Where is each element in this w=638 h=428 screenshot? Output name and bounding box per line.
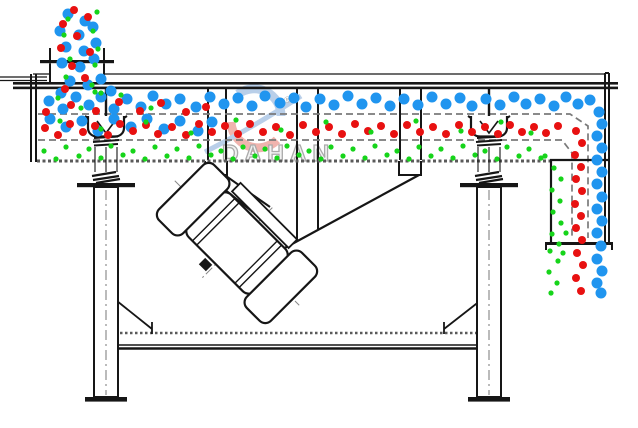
green-particle [549,231,554,236]
blue-particle [44,96,55,107]
green-particle [482,148,487,153]
red-particle [61,85,69,93]
red-particle [92,107,100,115]
red-particle [182,108,190,116]
blue-particle [561,92,572,103]
blue-particle [96,74,107,85]
red-particle [481,123,489,131]
red-particle [84,13,92,21]
green-particle [560,250,565,255]
green-particle [450,155,455,160]
blue-particle [413,100,424,111]
red-particle [571,200,579,208]
red-particle [208,128,216,136]
blue-particle [371,93,382,104]
blue-particle [343,91,354,102]
red-particle [530,123,538,131]
green-particle [350,146,355,151]
green-particle [413,118,418,123]
red-particle [286,131,294,139]
red-particle [73,32,81,40]
red-particle [259,128,267,136]
green-particle [196,143,201,148]
green-particle [460,143,465,148]
blue-particle [573,99,584,110]
blue-particle [521,99,532,110]
green-particle [262,146,267,151]
foot-pad [468,397,510,402]
blue-particle [289,93,300,104]
red-particle [195,120,203,128]
red-particle [572,224,580,232]
red-particle [66,120,74,128]
green-particle [252,153,257,158]
green-particle [98,155,103,160]
red-particle [572,274,580,282]
green-particle [164,153,169,158]
green-particle [274,155,279,160]
green-particle [98,126,103,131]
red-particle [579,261,587,269]
blue-particle [71,92,82,103]
blue-particle [260,91,271,102]
green-particle [86,146,91,151]
green-particle [416,144,421,149]
blue-particle [301,102,312,113]
green-particle [498,119,503,124]
red-particle [168,123,176,131]
green-particle [558,220,563,225]
lower-spring-stack [475,172,503,183]
blue-particle [315,94,326,105]
red-particle [299,121,307,129]
blue-particle [175,94,186,105]
support-leg-left [85,187,127,402]
blue-particle [427,92,438,103]
blue-particle [91,38,102,49]
blue-particle [535,94,546,105]
blue-particle [275,98,286,109]
red-particle [129,127,137,135]
red-particle [351,120,359,128]
green-particle [526,146,531,151]
red-particle [312,128,320,136]
green-particle [554,280,559,285]
green-particle [95,46,100,51]
green-particle [551,165,556,170]
blue-particle [592,278,603,289]
blue-particle [592,204,603,215]
green-particle [504,144,509,149]
red-particle [234,130,242,138]
green-particle [78,105,83,110]
blue-particle [592,131,603,142]
green-particle [546,269,551,274]
red-particle [115,98,123,106]
red-particle [390,130,398,138]
green-particle [340,153,345,158]
green-particle [548,290,553,295]
red-particle [577,212,585,220]
red-particle [59,20,67,28]
blue-particle [481,94,492,105]
green-particle [142,156,147,161]
green-particle [516,153,521,158]
red-particle [403,121,411,129]
green-particle [528,130,533,135]
foot-pad [85,397,127,402]
green-particle [63,144,68,149]
blue-particle [585,95,596,106]
blue-particle [207,117,218,128]
blue-particle [77,116,88,127]
red-particle [572,127,580,135]
red-particle [68,62,76,70]
green-particle [57,118,62,123]
blue-particle [329,100,340,111]
blue-particle [596,288,607,299]
red-particle [377,122,385,130]
green-particle [65,16,70,21]
blue-particle [596,241,607,252]
blue-particle [594,107,605,118]
green-particle [174,146,179,151]
green-particle [438,146,443,151]
blue-particle [385,101,396,112]
lower-spring-stack [92,172,120,183]
red-particle [104,131,112,139]
blue-particle [57,58,68,69]
green-particle [494,156,499,161]
green-particle [549,187,554,192]
green-particle [118,92,123,97]
green-particle [55,95,60,100]
red-particle [70,6,78,14]
blue-particle [597,192,608,203]
blue-particle [247,101,258,112]
green-particle [406,156,411,161]
blue-particle [592,155,603,166]
motor-mount-arm-right [281,175,419,250]
blue-particle [75,62,86,73]
green-particle [323,119,328,124]
blue-particle [592,228,603,239]
red-particle [578,139,586,147]
red-particle [81,74,89,82]
red-particle [572,175,580,183]
green-particle [120,152,125,157]
green-particle [550,209,555,214]
green-particle [92,62,97,67]
green-particle [76,153,81,158]
red-particle [79,128,87,136]
blue-particle [467,101,478,112]
blue-particle [549,101,560,112]
red-particle [542,129,550,137]
cross-beam [98,333,500,349]
green-particle [284,143,289,148]
red-particle [154,130,162,138]
blue-particle [597,167,608,178]
red-particle [577,163,585,171]
green-particle [384,152,389,157]
red-particle [571,151,579,159]
blue-particle [357,99,368,110]
green-particle [542,153,547,158]
red-particle [91,122,99,130]
green-particle [563,230,568,235]
green-particle [94,9,99,14]
green-particle [472,152,477,157]
green-particle [148,105,153,110]
red-particle [468,128,476,136]
green-particle [278,127,283,132]
green-particle [90,28,95,33]
blue-particle [148,91,159,102]
red-particle [578,236,586,244]
red-particle [116,120,124,128]
support-leg-right [468,187,510,402]
top-flange-lower-bar [13,87,618,90]
red-particle [67,101,75,109]
blue-particle [597,143,608,154]
vibration-motor [139,145,334,340]
red-particle [202,103,210,111]
red-particle [136,107,144,115]
left-end-lip [0,77,47,81]
green-particle [130,148,135,153]
red-particle [442,130,450,138]
green-particle [556,241,561,246]
red-particle [86,48,94,56]
green-particle [186,155,191,160]
red-particle [494,130,502,138]
green-particle [41,148,46,153]
red-particle [221,122,229,130]
green-particle [296,152,301,157]
green-particle [92,89,97,94]
blue-particle [205,92,216,103]
green-particle [152,144,157,149]
red-particle [554,122,562,130]
blue-particle [219,99,230,110]
green-particle [328,144,333,149]
red-particle [578,187,586,195]
blue-particle [592,179,603,190]
red-particle [506,121,514,129]
blue-particle [509,92,520,103]
red-particle [338,130,346,138]
green-particle [558,176,563,181]
green-particle [458,128,463,133]
blue-particle [441,99,452,110]
green-particle [428,153,433,158]
blue-particle [597,216,608,227]
blue-particle [58,104,69,115]
red-particle [429,123,437,131]
blue-particle [233,93,244,104]
blue-particle [592,254,603,265]
green-particle [394,148,399,153]
red-particle [518,128,526,136]
blue-particle [495,100,506,111]
green-particle [547,248,552,253]
blue-particle [597,119,608,130]
green-particle [63,74,68,79]
green-particle [362,155,367,160]
green-particle [555,258,560,263]
red-particle [157,99,165,107]
green-particle [67,56,72,61]
blue-particle [399,94,410,105]
blue-particle [455,93,466,104]
red-particle [416,128,424,136]
red-particle [573,249,581,257]
green-particle [61,32,66,37]
green-particle [233,117,238,122]
green-particle [368,129,373,134]
vibrating-screen-diagram: ® DAHAN [0,0,638,428]
red-particle [42,108,50,116]
green-particle [218,148,223,153]
red-particle [41,124,49,132]
green-particle [306,148,311,153]
red-particle [246,120,254,128]
blue-particle [106,86,117,97]
green-particle [188,130,193,135]
green-particle [143,119,148,124]
green-particle [240,144,245,149]
green-particle [557,198,562,203]
blue-particle [191,102,202,113]
green-particle [318,156,323,161]
blue-particle [597,266,608,277]
green-particle [98,90,103,95]
blue-particle [175,116,186,127]
green-particle [108,143,113,148]
green-particle [89,82,94,87]
green-particle [230,156,235,161]
red-particle [455,121,463,129]
red-particle [577,287,585,295]
green-particle [53,156,58,161]
green-particle [372,143,377,148]
red-particle [57,44,65,52]
green-particle [208,152,213,157]
diagram-svg: ® DAHAN [0,0,638,428]
red-particle [54,131,62,139]
